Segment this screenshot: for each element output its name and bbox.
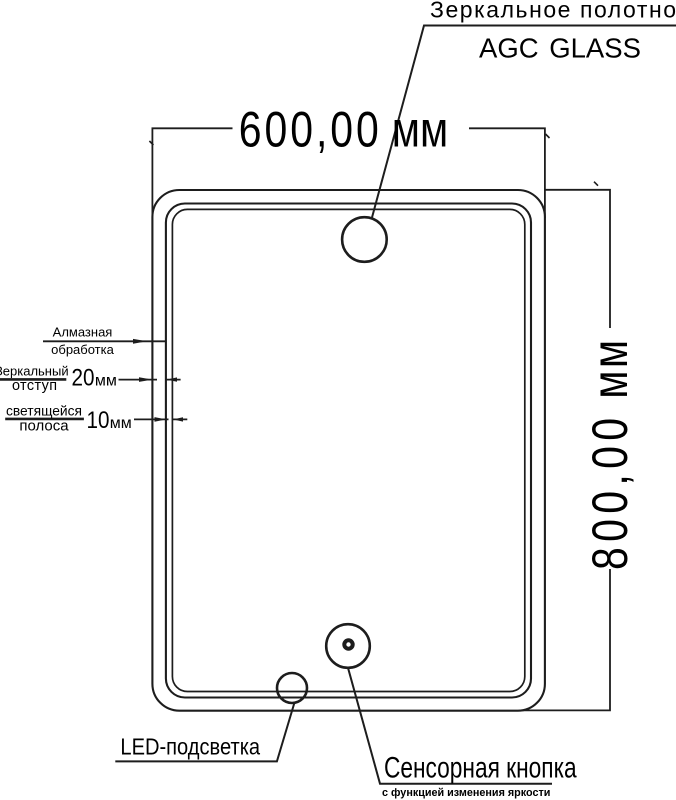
- svg-text:LED-подсветка: LED-подсветка: [120, 733, 260, 760]
- svg-text:полоса: полоса: [19, 418, 69, 435]
- svg-text:отступ: отступ: [12, 378, 57, 394]
- svg-text:Зеркальное полотно: Зеркальное полотно: [430, 0, 676, 23]
- svg-text:мм: мм: [95, 372, 117, 389]
- svg-text:20: 20: [72, 364, 95, 391]
- svg-text:AGC GLASS: AGC GLASS: [479, 32, 641, 63]
- svg-text:с функцией изменения яркости: с функцией изменения яркости: [382, 787, 550, 799]
- svg-text:Зеркальный: Зеркальный: [0, 364, 69, 379]
- svg-text:Сенсорная кнопка: Сенсорная кнопка: [384, 751, 577, 785]
- svg-text:мм: мм: [392, 102, 448, 158]
- svg-text:обработка: обработка: [51, 342, 114, 357]
- svg-text:600,00: 600,00: [239, 102, 382, 158]
- svg-text:Алмазная: Алмазная: [53, 324, 113, 339]
- svg-text:светящейся: светящейся: [6, 403, 82, 418]
- svg-text:мм: мм: [110, 415, 132, 432]
- svg-text:10: 10: [87, 407, 110, 434]
- svg-text:800,00 мм: 800,00 мм: [582, 337, 638, 570]
